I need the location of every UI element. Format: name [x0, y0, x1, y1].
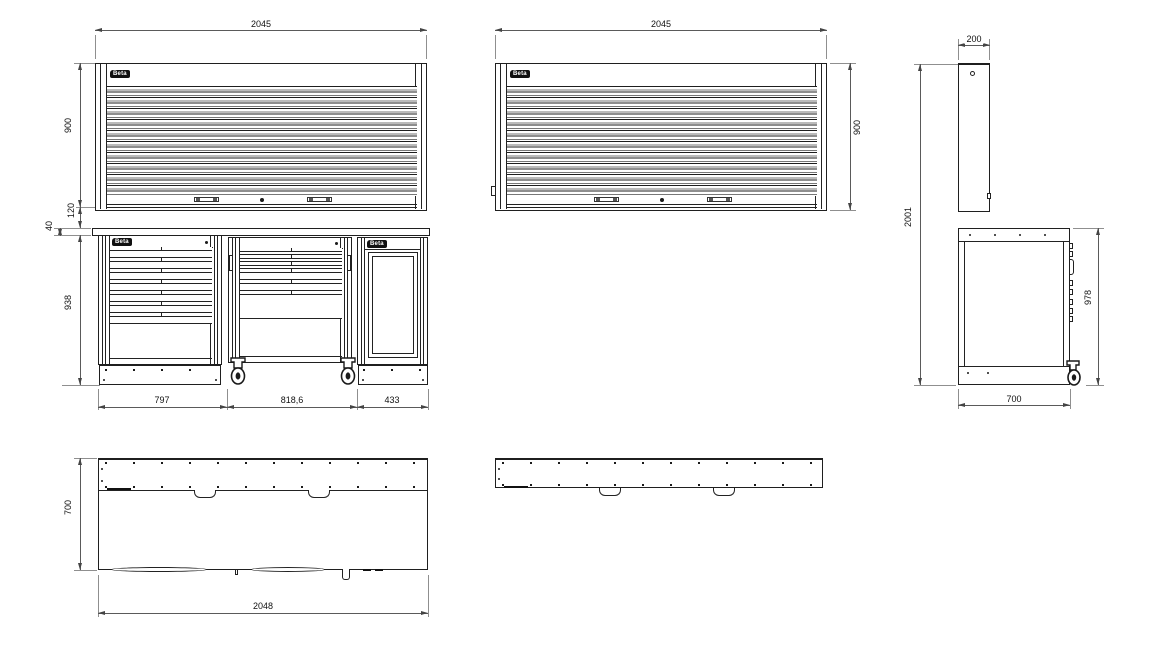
- screw-dots: [105, 369, 217, 371]
- drawer-side-bump: [1070, 289, 1073, 295]
- dimension-line: [80, 458, 81, 570]
- screw-dot: [215, 379, 217, 381]
- side-latch: [229, 255, 233, 271]
- technical-drawing: 2045 Beta 900 120 40 938: [0, 0, 1169, 645]
- extension-line: [428, 575, 429, 617]
- dim-label-shutter-height: 900: [852, 118, 862, 137]
- extension-line: [95, 35, 96, 59]
- hinge-strip: [107, 488, 131, 490]
- edge-line: [110, 358, 212, 359]
- tick: [291, 291, 292, 295]
- dim-label-worktop: 40: [44, 219, 54, 233]
- plan-handle: [194, 490, 216, 498]
- shutter-handle: [307, 197, 332, 202]
- screw-dot: [422, 379, 424, 381]
- extension-line: [426, 35, 427, 59]
- screw-dot: [103, 379, 105, 381]
- dim-label-overall-height: 2001: [903, 205, 913, 229]
- drawer: [110, 258, 212, 269]
- edge-line: [107, 204, 417, 205]
- frame-line: [235, 238, 236, 362]
- extension-line: [826, 35, 827, 59]
- beta-logo: Beta: [112, 238, 132, 246]
- frame-line: [423, 238, 424, 364]
- tick: [161, 313, 162, 317]
- drawer-stack: [110, 247, 212, 324]
- screw-dot: [987, 372, 989, 374]
- tick: [161, 291, 162, 295]
- dimension-line: [1098, 228, 1099, 385]
- frame-line: [364, 238, 365, 364]
- brand-text: Beta: [115, 239, 129, 245]
- roller-shutter-slats: [507, 86, 817, 196]
- roller-shutter-slats: [107, 86, 417, 196]
- tick: [161, 247, 162, 251]
- edge-line: [959, 241, 1069, 242]
- drawer-side-bump: [1070, 280, 1073, 286]
- plan-handle: [308, 490, 330, 498]
- frame-line: [214, 236, 215, 364]
- door-cabinet-right: Beta: [357, 237, 428, 365]
- frame-line: [500, 64, 501, 209]
- caster-wheel: [1064, 360, 1084, 387]
- beta-logo: Beta: [367, 240, 387, 248]
- side-handle: [1070, 259, 1074, 275]
- frame-line: [361, 238, 362, 364]
- extension-line: [495, 35, 496, 59]
- frame-line: [217, 236, 218, 364]
- dimension-line: [98, 613, 428, 614]
- screw-dot: [498, 478, 500, 480]
- base-cabinet-left: Beta: [98, 235, 222, 365]
- extension-line: [62, 385, 100, 386]
- mount-hole: [970, 71, 975, 76]
- screw-dot: [362, 379, 364, 381]
- arrowhead: [421, 405, 428, 409]
- shutter-lock: [660, 198, 664, 202]
- extension-line: [1070, 389, 1071, 409]
- wall-bracket: [491, 186, 496, 196]
- arrowhead: [357, 405, 364, 409]
- dim-label-plan-depth: 700: [63, 498, 73, 517]
- arrowhead: [78, 207, 82, 214]
- extension-line: [74, 570, 97, 571]
- roller-cabinet-middle: [228, 237, 352, 363]
- arrowhead: [58, 229, 62, 236]
- arrowhead: [78, 63, 82, 70]
- arrowhead: [98, 405, 105, 409]
- plinth-left: [99, 365, 221, 385]
- front-edge-contour: [111, 567, 207, 572]
- bracket-tab: [987, 193, 991, 199]
- frame-line: [821, 64, 822, 209]
- extension-line: [914, 385, 956, 386]
- plinth-right: [358, 365, 428, 385]
- frame-line: [420, 238, 421, 364]
- arrowhead: [78, 235, 82, 242]
- tick: [161, 258, 162, 262]
- arrowhead: [820, 28, 827, 32]
- dimension-line: [958, 45, 990, 46]
- dimension-line: [60, 228, 61, 236]
- screw-dot: [101, 480, 103, 482]
- tick: [161, 302, 162, 306]
- dimension-line: [80, 63, 81, 207]
- arrowhead: [958, 403, 965, 407]
- lock: [205, 241, 208, 244]
- arrowhead: [1096, 228, 1100, 235]
- drawer-side-bump: [1070, 251, 1073, 257]
- drawer: [240, 280, 342, 291]
- dim-label-cabinet1: 797: [152, 395, 171, 405]
- frame-line: [105, 236, 106, 364]
- wall-shutter-unit-front: Beta: [95, 63, 427, 211]
- dimension-line: [495, 30, 827, 31]
- tick: [291, 255, 292, 259]
- panel-line: [1063, 241, 1064, 366]
- edge-line: [365, 249, 421, 250]
- tick: [291, 280, 292, 284]
- screw-dots: [502, 462, 818, 464]
- screw-dot: [1019, 234, 1021, 236]
- dim-label-bench-depth: 700: [1004, 394, 1023, 404]
- drawer: [110, 313, 212, 324]
- arrowhead: [78, 378, 82, 385]
- front-edge-contour: [251, 567, 325, 572]
- tick: [291, 248, 292, 252]
- shutter-lock: [260, 198, 264, 202]
- lock: [335, 242, 338, 245]
- arrowhead: [220, 405, 227, 409]
- arrowhead: [848, 63, 852, 70]
- tick: [161, 280, 162, 284]
- drawer: [110, 280, 212, 291]
- extension-line: [428, 389, 429, 410]
- plan-view-bench: [98, 458, 428, 570]
- hinge-strip: [504, 486, 528, 488]
- drawer-side-bump: [1070, 316, 1073, 322]
- dim-label-width: 2045: [649, 19, 673, 29]
- front-tab: [235, 569, 238, 575]
- drawer: [240, 269, 342, 280]
- arrowhead: [420, 28, 427, 32]
- tick: [291, 269, 292, 273]
- arrowhead: [78, 563, 82, 570]
- brand-text: Beta: [113, 71, 127, 77]
- dim-label-wall-depth: 200: [964, 34, 983, 44]
- caster-wheel: [338, 357, 358, 386]
- wall-shutter-unit-front-2: Beta: [495, 63, 827, 211]
- panel-line: [964, 241, 965, 366]
- screw-dots: [105, 462, 423, 464]
- arrowhead: [350, 405, 357, 409]
- tick: [161, 269, 162, 273]
- side-latch: [347, 255, 351, 271]
- arrowhead: [78, 458, 82, 465]
- shutter-handle: [194, 197, 219, 202]
- dim-label-width: 2045: [249, 19, 273, 29]
- screw-dots: [502, 484, 818, 486]
- arrowhead: [98, 611, 105, 615]
- screw-dot: [101, 468, 103, 470]
- dim-label-bench-height: 978: [1083, 288, 1093, 307]
- workbench-side: [958, 228, 1070, 385]
- plan-handle: [599, 488, 621, 496]
- frame-line: [102, 236, 103, 364]
- extension-line: [1086, 385, 1104, 386]
- plan-view-wall-unit: [495, 458, 823, 488]
- beta-logo: Beta: [510, 70, 530, 78]
- plan-handle: [713, 488, 735, 496]
- drawer-side-bump: [1070, 299, 1073, 305]
- drawer: [240, 291, 342, 319]
- edge-line: [507, 204, 817, 205]
- arrowhead: [227, 405, 234, 409]
- edge-line: [507, 207, 817, 208]
- drawer: [110, 247, 212, 258]
- caster-wheel: [228, 357, 248, 386]
- wall-unit-side: [958, 63, 990, 212]
- drawer-side-bump: [1070, 308, 1073, 314]
- arrowhead: [1063, 403, 1070, 407]
- screw-dot: [967, 372, 969, 374]
- dimension-line: [95, 30, 427, 31]
- shutter-handle: [594, 197, 619, 202]
- screw-dots: [363, 369, 425, 371]
- arrowhead: [848, 203, 852, 210]
- drawer: [240, 248, 342, 255]
- arrowhead: [918, 378, 922, 385]
- dim-label-cabinet2: 818,6: [279, 395, 306, 405]
- screw-dot: [969, 234, 971, 236]
- edge-line: [107, 207, 417, 208]
- frame-line: [344, 238, 345, 362]
- drawer-stack: [240, 248, 342, 319]
- tick: [291, 262, 292, 266]
- dim-label-shutter-height: 900: [63, 116, 73, 135]
- screw-dot: [498, 468, 500, 470]
- door-panel: [372, 256, 414, 354]
- drawer: [110, 269, 212, 280]
- edge-line: [959, 366, 1069, 367]
- dimension-line: [958, 405, 1070, 406]
- arrowhead: [495, 28, 502, 32]
- arrowhead: [95, 28, 102, 32]
- arrowhead: [421, 611, 428, 615]
- dimension-line: [80, 207, 81, 228]
- arrowhead: [78, 221, 82, 228]
- arrowhead: [1096, 378, 1100, 385]
- screw-dots: [105, 486, 423, 488]
- dim-label-gap: 120: [66, 201, 76, 220]
- drawer: [110, 302, 212, 313]
- brand-text: Beta: [370, 241, 384, 247]
- drawer: [240, 262, 342, 269]
- arrowhead: [983, 43, 990, 47]
- dimension-line: [98, 407, 428, 408]
- dim-label-cabinet3: 433: [382, 395, 401, 405]
- dimension-line: [920, 64, 921, 385]
- dimension-line: [850, 63, 851, 210]
- drawer: [240, 255, 342, 262]
- drawer: [110, 291, 212, 302]
- dimension-line: [80, 235, 81, 385]
- back-rail-line: [99, 490, 427, 491]
- dim-label-base-height: 938: [63, 293, 73, 312]
- brand-text: Beta: [513, 71, 527, 77]
- arrowhead: [78, 200, 82, 207]
- dim-label-plan-width: 2048: [251, 601, 275, 611]
- shutter-handle: [707, 197, 732, 202]
- screw-dot: [1044, 234, 1046, 236]
- frame-line: [100, 64, 101, 209]
- beta-logo: Beta: [110, 70, 130, 78]
- arrowhead: [918, 64, 922, 71]
- frame-line: [421, 64, 422, 209]
- dashed-mark: [363, 569, 385, 571]
- extension-line: [830, 210, 856, 211]
- extension-line: [830, 63, 856, 64]
- drawer-side-bump: [1070, 243, 1073, 249]
- lock-hook: [342, 569, 350, 580]
- edge-line: [240, 356, 342, 357]
- screw-dot: [994, 234, 996, 236]
